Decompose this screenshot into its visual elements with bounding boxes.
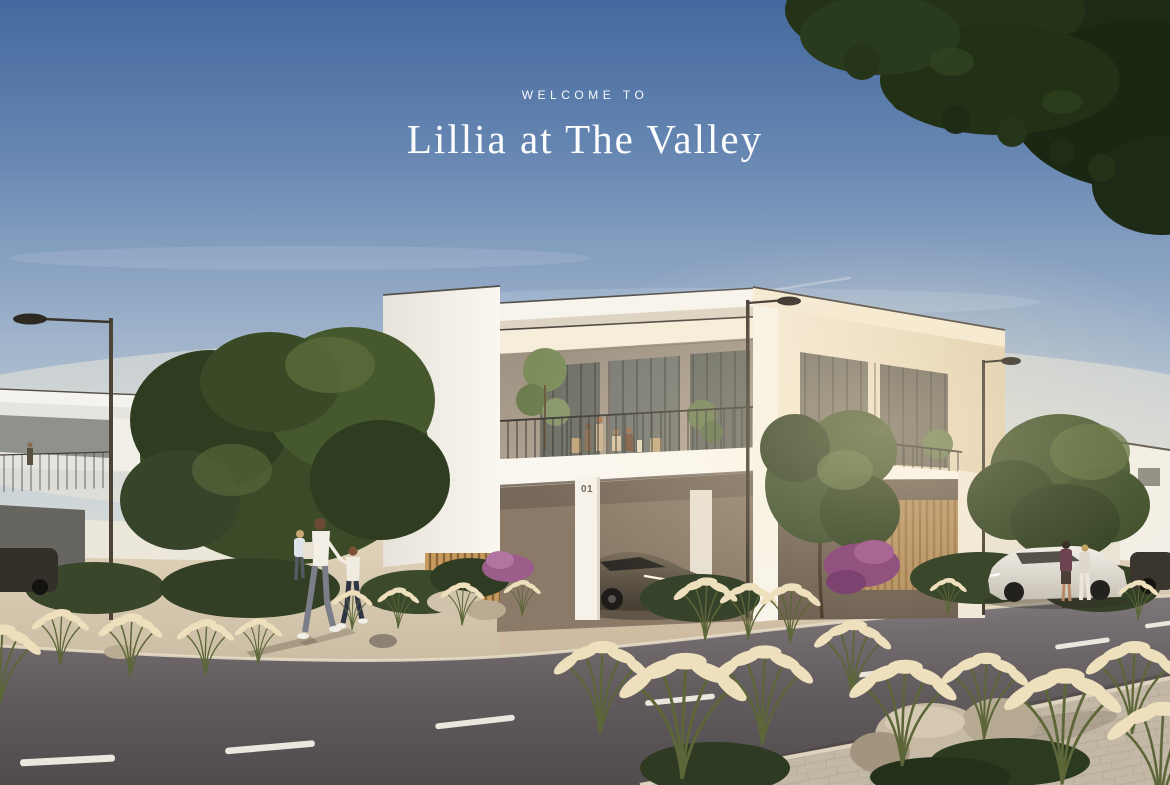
bougainvillea (854, 540, 894, 564)
man-head (1062, 541, 1070, 549)
boy-head (348, 546, 357, 555)
foliage-highlight (285, 337, 375, 393)
bougainvillea (826, 570, 866, 594)
dark-car-left-edge (0, 548, 58, 595)
bg-villa-glass (0, 415, 110, 458)
man-shorts (1061, 571, 1071, 584)
leaf-cluster (1049, 139, 1075, 165)
leaf-cluster (844, 44, 880, 80)
leaf-cluster (997, 117, 1027, 147)
hero-image: 01 (0, 0, 1170, 785)
woman-head (1081, 544, 1088, 551)
leaf-cluster (942, 106, 970, 134)
car-wheel (1004, 582, 1024, 602)
leaf-cluster (1088, 154, 1116, 182)
car-wheel (1090, 580, 1110, 600)
car-hub (608, 595, 616, 603)
sneaker (358, 618, 368, 623)
tote-bag (303, 542, 314, 559)
sneaker (336, 623, 346, 628)
couple-shadow (1052, 597, 1100, 607)
foliage-mass (310, 420, 450, 540)
boy-shirt (346, 557, 360, 581)
man-top (1060, 549, 1072, 572)
car-wheel (32, 579, 48, 595)
bougainvillea (486, 551, 514, 569)
cloud-band (10, 246, 590, 270)
leaf-cluster (890, 80, 922, 112)
leaf-highlight (1042, 90, 1082, 114)
bg-balcony-person-head (27, 442, 32, 447)
toddler-head (296, 530, 304, 538)
lamp-head (13, 314, 47, 325)
leaf-highlight (930, 48, 974, 76)
bg-balcony-person (27, 448, 33, 465)
mother-head (314, 518, 326, 530)
scene-render: 01 (0, 0, 1170, 785)
landscape-rock (369, 634, 397, 648)
foliage-highlight (192, 444, 272, 496)
mother-top (312, 531, 330, 566)
woman-top (1079, 552, 1090, 573)
sneaker (297, 633, 309, 639)
car-body (0, 548, 58, 592)
bg-villa-railing (0, 452, 110, 492)
